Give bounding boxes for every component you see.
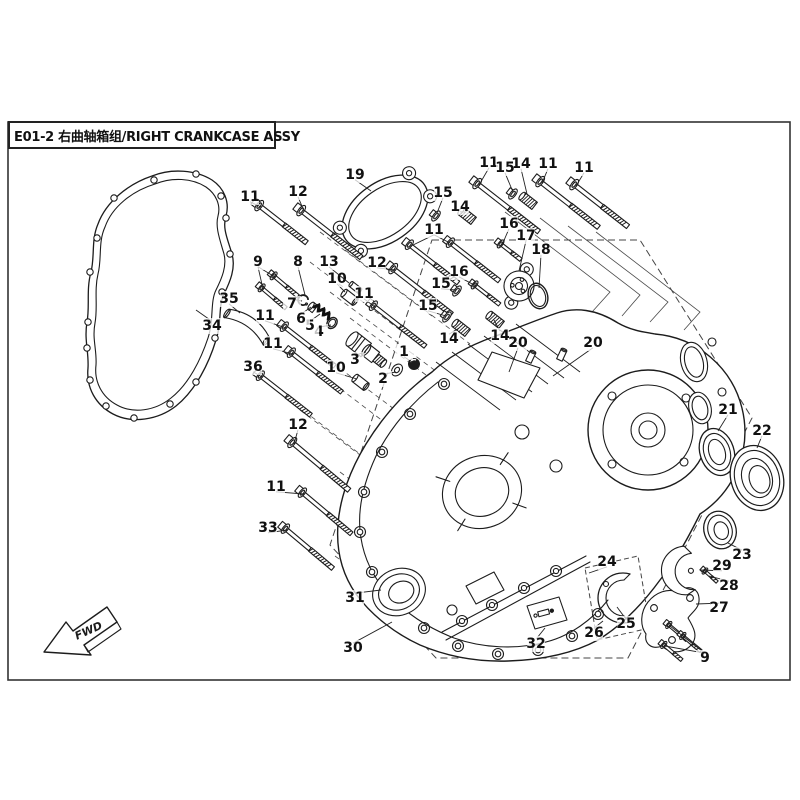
callout-21: 21 (718, 402, 737, 418)
callout-27: 27 (709, 600, 728, 616)
bolt-part (283, 433, 354, 495)
projection-line (540, 218, 640, 316)
callout-1: 1 (399, 344, 409, 360)
leader-line (298, 267, 305, 295)
callout-14: 14 (490, 328, 510, 344)
callout-22: 22 (752, 423, 771, 439)
callout-14: 14 (450, 199, 470, 215)
callout-11: 11 (424, 222, 443, 238)
catalog-page: E01-2 右曲轴箱组/RIGHT CRANKCASE ASSY FWD1234… (0, 0, 800, 800)
callout-13: 13 (319, 254, 338, 270)
callout-36: 36 (243, 359, 262, 375)
callout-28: 28 (719, 578, 738, 594)
callout-6: 6 (296, 311, 306, 327)
callout-14: 14 (439, 331, 459, 347)
callout-32: 32 (526, 636, 545, 652)
bolt-part (276, 520, 336, 573)
fwd-arrow: FWD (44, 607, 121, 655)
callout-12: 12 (288, 184, 307, 200)
callout-7: 7 (287, 296, 297, 312)
callout-12: 12 (367, 255, 386, 271)
gasket-19 (325, 157, 445, 266)
callout-10: 10 (326, 360, 346, 376)
callout-8: 8 (293, 254, 303, 270)
page-title: E01-2 右曲轴箱组/RIGHT CRANKCASE ASSY (8, 121, 276, 149)
callout-11: 11 (574, 160, 593, 176)
bolt-part (565, 175, 632, 231)
callout-23: 23 (732, 547, 751, 563)
gasket-34 (84, 171, 233, 421)
callout-11: 11 (263, 336, 282, 352)
callout-16: 16 (449, 264, 468, 280)
callout-11: 11 (538, 156, 557, 172)
callout-15: 15 (433, 185, 452, 201)
leader-line (521, 169, 527, 194)
callout-25: 25 (616, 616, 635, 632)
callout-11: 11 (255, 308, 274, 324)
callout-19: 19 (345, 167, 364, 183)
callout-20: 20 (583, 335, 603, 351)
callout-11: 11 (240, 189, 259, 205)
stud-part (485, 310, 505, 328)
callout-11: 11 (354, 286, 373, 302)
callout-15: 15 (495, 160, 514, 176)
callout-2: 2 (378, 371, 388, 387)
callout-29: 29 (712, 558, 731, 574)
callout-20: 20 (508, 335, 528, 351)
callout-24: 24 (597, 554, 617, 570)
callout-15: 15 (418, 298, 437, 314)
callout-9: 9 (700, 650, 710, 666)
plug-1 (409, 359, 420, 370)
stud-part (518, 191, 538, 209)
projection-line (568, 226, 668, 322)
callout-15: 15 (431, 276, 450, 292)
callout-30: 30 (343, 640, 363, 656)
nut-part (428, 208, 442, 223)
callout-35: 35 (219, 291, 238, 307)
callout-18: 18 (531, 242, 550, 258)
callout-12: 12 (288, 417, 307, 433)
leader-line (539, 255, 541, 288)
callout-33: 33 (258, 520, 277, 536)
callout-26: 26 (584, 625, 603, 641)
callout-3: 3 (350, 352, 360, 368)
callout-34: 34 (202, 318, 222, 334)
bolt-part (531, 172, 603, 232)
projection-line (596, 232, 700, 330)
callout-11: 11 (266, 479, 285, 495)
parts-diagram: FWD1234567899101011111111111111111112121… (0, 0, 800, 800)
callout-31: 31 (345, 590, 364, 606)
dowel-part (351, 373, 370, 391)
callout-9: 9 (253, 254, 263, 270)
